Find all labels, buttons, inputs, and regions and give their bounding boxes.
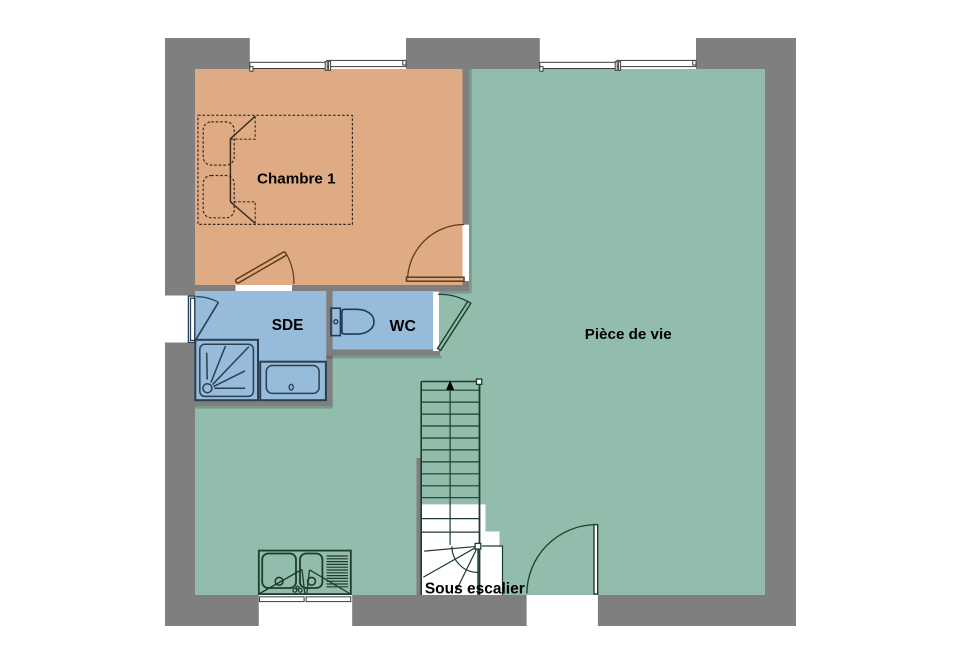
svg-text:Pièce de vie: Pièce de vie bbox=[585, 326, 672, 343]
svg-text:Chambre 1: Chambre 1 bbox=[257, 171, 336, 188]
svg-text:WC: WC bbox=[390, 318, 416, 335]
svg-text:Sous escalier: Sous escalier bbox=[425, 580, 525, 597]
svg-text:SDE: SDE bbox=[272, 317, 304, 334]
